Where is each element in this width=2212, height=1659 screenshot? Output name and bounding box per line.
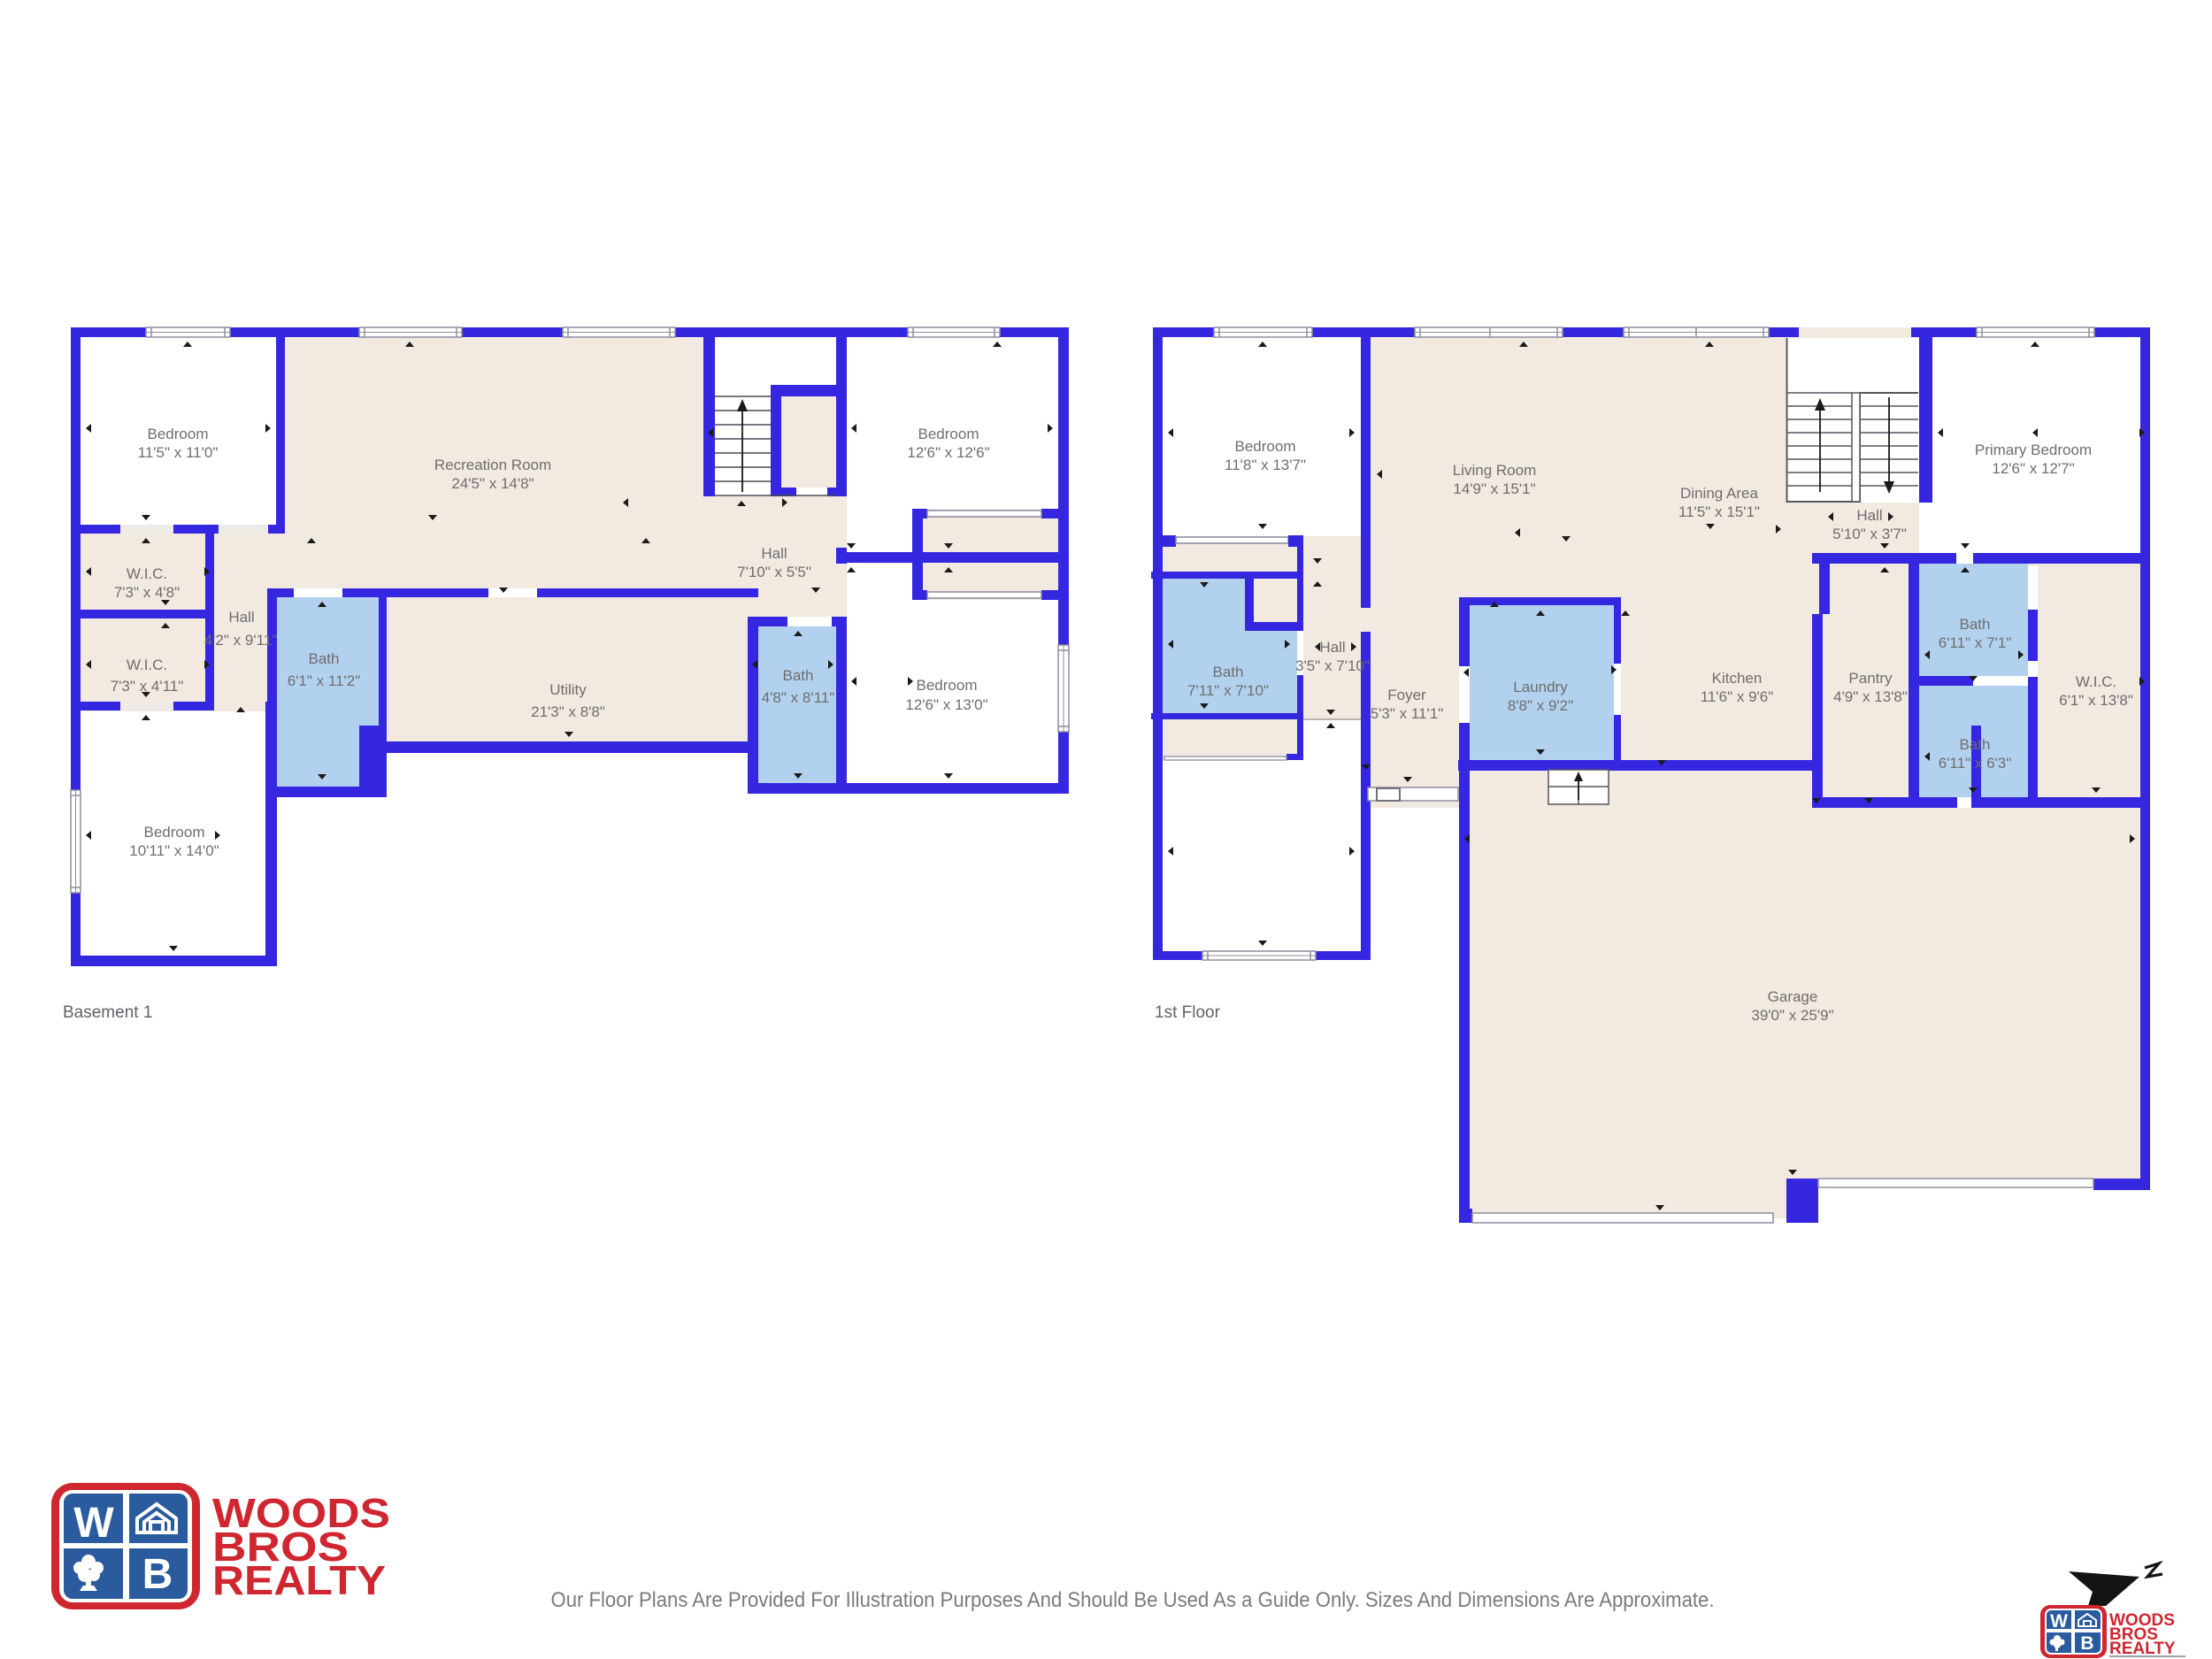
svg-text:6'11" x 7'1": 6'11" x 7'1" <box>1939 634 2012 651</box>
svg-text:5'3" x 11'1": 5'3" x 11'1" <box>1371 705 1444 722</box>
svg-text:24'5" x 14'8": 24'5" x 14'8" <box>451 475 534 492</box>
svg-text:B: B <box>2080 1633 2093 1654</box>
svg-text:6'1" x 11'2": 6'1" x 11'2" <box>288 672 361 689</box>
svg-text:REALTY: REALTY <box>2109 1640 2176 1658</box>
svg-text:4'2" x 9'11": 4'2" x 9'11" <box>204 632 278 649</box>
svg-text:W.I.C.: W.I.C. <box>127 565 167 582</box>
svg-text:6'11" x 6'3": 6'11" x 6'3" <box>1939 755 2012 772</box>
svg-text:Bath: Bath <box>783 667 814 684</box>
svg-text:Basement 1: Basement 1 <box>63 1003 152 1022</box>
svg-text:3'5" x 7'10": 3'5" x 7'10" <box>1295 657 1370 674</box>
svg-text:Garage: Garage <box>1768 988 1818 1005</box>
svg-text:B: B <box>142 1551 173 1598</box>
svg-text:Bath: Bath <box>309 650 340 667</box>
svg-text:W: W <box>73 1500 114 1547</box>
svg-text:7'10" x 5'5": 7'10" x 5'5" <box>737 564 811 580</box>
svg-text:Recreation Room: Recreation Room <box>434 457 551 473</box>
svg-text:11'8" x 13'7": 11'8" x 13'7" <box>1225 457 1306 473</box>
svg-text:Bedroom: Bedroom <box>918 426 979 442</box>
svg-text:11'6" x 9'6": 11'6" x 9'6" <box>1701 688 1774 705</box>
svg-text:11'5" x 11'0": 11'5" x 11'0" <box>138 444 219 461</box>
svg-text:Pantry: Pantry <box>1848 670 1893 687</box>
svg-text:Bath: Bath <box>1960 616 1991 633</box>
svg-text:7'3" x 4'11": 7'3" x 4'11" <box>111 678 184 695</box>
svg-text:W.I.C.: W.I.C. <box>127 657 167 673</box>
svg-text:Bedroom: Bedroom <box>148 426 209 442</box>
svg-text:REALTY: REALTY <box>212 1557 386 1603</box>
svg-text:Bedroom: Bedroom <box>1235 438 1296 455</box>
svg-text:Hall: Hall <box>1856 507 1882 524</box>
svg-text:14'9" x 15'1": 14'9" x 15'1" <box>1453 480 1535 497</box>
svg-text:Hall: Hall <box>1319 639 1345 656</box>
svg-text:8'8" x 9'2": 8'8" x 9'2" <box>1508 697 1573 714</box>
svg-text:Dining Area: Dining Area <box>1680 485 1758 502</box>
svg-text:7'11" x 7'10": 7'11" x 7'10" <box>1187 682 1269 699</box>
svg-text:Living Room: Living Room <box>1453 462 1537 479</box>
svg-text:Primary Bedroom: Primary Bedroom <box>1975 442 2092 458</box>
svg-text:12'6" x 12'7": 12'6" x 12'7" <box>1992 460 2074 477</box>
svg-text:10'11" x 14'0": 10'11" x 14'0" <box>129 842 219 859</box>
svg-text:Bath: Bath <box>1960 736 1991 753</box>
svg-text:Utility: Utility <box>549 681 587 698</box>
svg-text:5'10" x 3'7": 5'10" x 3'7" <box>1832 526 1907 542</box>
svg-text:Foyer: Foyer <box>1387 687 1426 703</box>
svg-text:W.I.C.: W.I.C. <box>2076 673 2116 690</box>
svg-text:Hall: Hall <box>228 609 254 626</box>
svg-text:4'8" x 8'11": 4'8" x 8'11" <box>762 689 835 706</box>
svg-text:Laundry: Laundry <box>1513 679 1568 695</box>
svg-text:11'5" x 15'1": 11'5" x 15'1" <box>1678 503 1760 520</box>
svg-text:12'6" x 13'0": 12'6" x 13'0" <box>905 696 987 713</box>
svg-text:Our Floor Plans Are Provided F: Our Floor Plans Are Provided For Illustr… <box>551 1588 1715 1612</box>
svg-text:6'1" x 13'8": 6'1" x 13'8" <box>2059 692 2133 709</box>
svg-text:Bedroom: Bedroom <box>144 824 205 841</box>
svg-text:4'9" x 13'8": 4'9" x 13'8" <box>1833 688 1908 705</box>
svg-text:7'3" x 4'8": 7'3" x 4'8" <box>114 584 180 601</box>
svg-text:21'3" x 8'8": 21'3" x 8'8" <box>531 703 605 720</box>
svg-text:39'0" x 25'9": 39'0" x 25'9" <box>1751 1007 1833 1024</box>
svg-text:Bath: Bath <box>1213 664 1244 680</box>
svg-text:1st Floor: 1st Floor <box>1155 1003 1221 1022</box>
svg-text:Kitchen: Kitchen <box>1712 670 1763 687</box>
svg-text:Hall: Hall <box>761 545 787 562</box>
svg-text:12'6" x 12'6": 12'6" x 12'6" <box>907 444 989 461</box>
svg-text:W: W <box>2050 1611 2068 1632</box>
svg-text:Bedroom: Bedroom <box>917 677 978 694</box>
